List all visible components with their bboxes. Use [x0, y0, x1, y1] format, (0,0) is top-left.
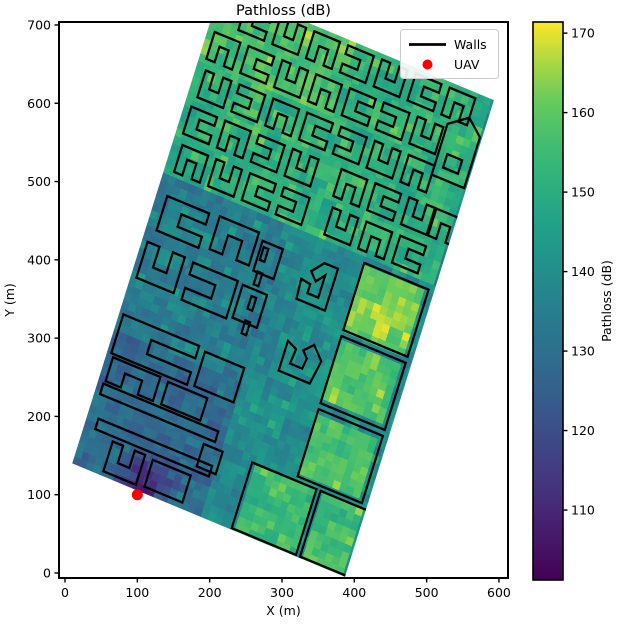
x-tick-label: 500: [415, 585, 439, 600]
colorbar-tick-label: 140: [571, 264, 595, 279]
map-region: [72, 0, 499, 579]
legend: WallsUAV: [401, 30, 499, 79]
uav-dot-swatch: [423, 60, 433, 70]
x-tick-label: 200: [198, 585, 222, 600]
colorbar-gradient: [533, 22, 563, 580]
colorbar-tick-label: 150: [571, 185, 595, 200]
colorbar-tick-label: 130: [571, 344, 595, 359]
chart-title: Pathloss (dB): [236, 3, 331, 19]
x-axis-label: X (m): [266, 603, 300, 618]
y-tick-label: 100: [27, 487, 51, 502]
colorbar-tick-label: 170: [571, 26, 595, 41]
colorbar-tick-label: 110: [571, 503, 595, 518]
walls-legend-label: Walls: [454, 37, 487, 52]
y-tick-label: 0: [43, 565, 51, 580]
uav-legend-label: UAV: [454, 57, 480, 72]
colorbar-tick-label: 120: [571, 423, 595, 438]
x-tick-label: 400: [342, 585, 366, 600]
pathloss-chart: 0100200300400500600010020030040050060070…: [0, 0, 622, 626]
y-tick-label: 400: [27, 252, 51, 267]
y-tick-label: 600: [27, 96, 51, 111]
y-tick-label: 700: [27, 17, 51, 32]
x-tick-label: 0: [61, 585, 69, 600]
y-tick-label: 200: [27, 409, 51, 424]
colorbar-tick-label: 160: [571, 105, 595, 120]
colorbar-label: Pathloss (dB): [599, 260, 614, 342]
uav-marker: [132, 489, 143, 500]
x-tick-label: 300: [270, 585, 294, 600]
y-tick-label: 300: [27, 331, 51, 346]
pathloss-figure: 0100200300400500600010020030040050060070…: [0, 0, 622, 626]
y-tick-label: 500: [27, 174, 51, 189]
x-tick-label: 600: [487, 585, 511, 600]
x-tick-label: 100: [125, 585, 149, 600]
y-axis-label: Y (m): [2, 283, 17, 318]
